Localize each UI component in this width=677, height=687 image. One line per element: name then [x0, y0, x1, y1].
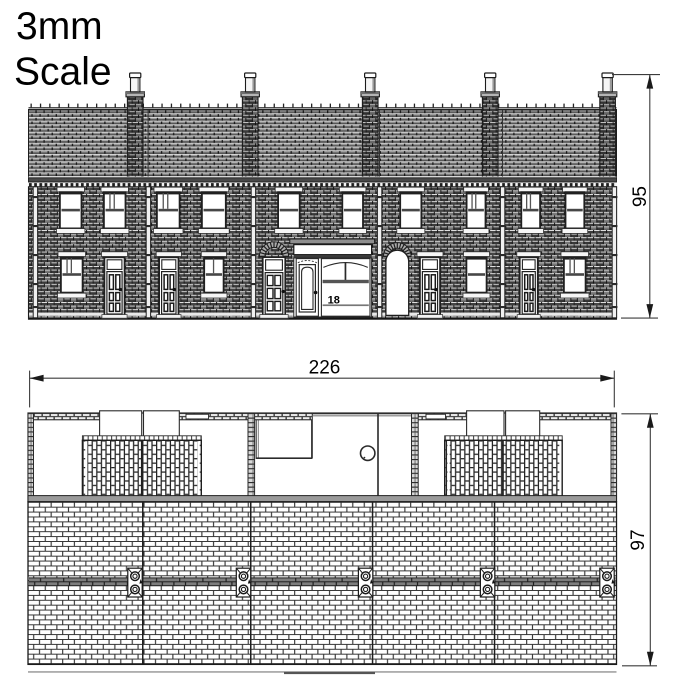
svg-text:Scale: Scale: [14, 51, 112, 94]
svg-text:95: 95: [630, 186, 651, 207]
svg-text:97: 97: [628, 529, 649, 550]
svg-text:3mm: 3mm: [16, 5, 103, 48]
svg-text:226: 226: [309, 357, 341, 378]
svg-text:18: 18: [328, 295, 340, 307]
